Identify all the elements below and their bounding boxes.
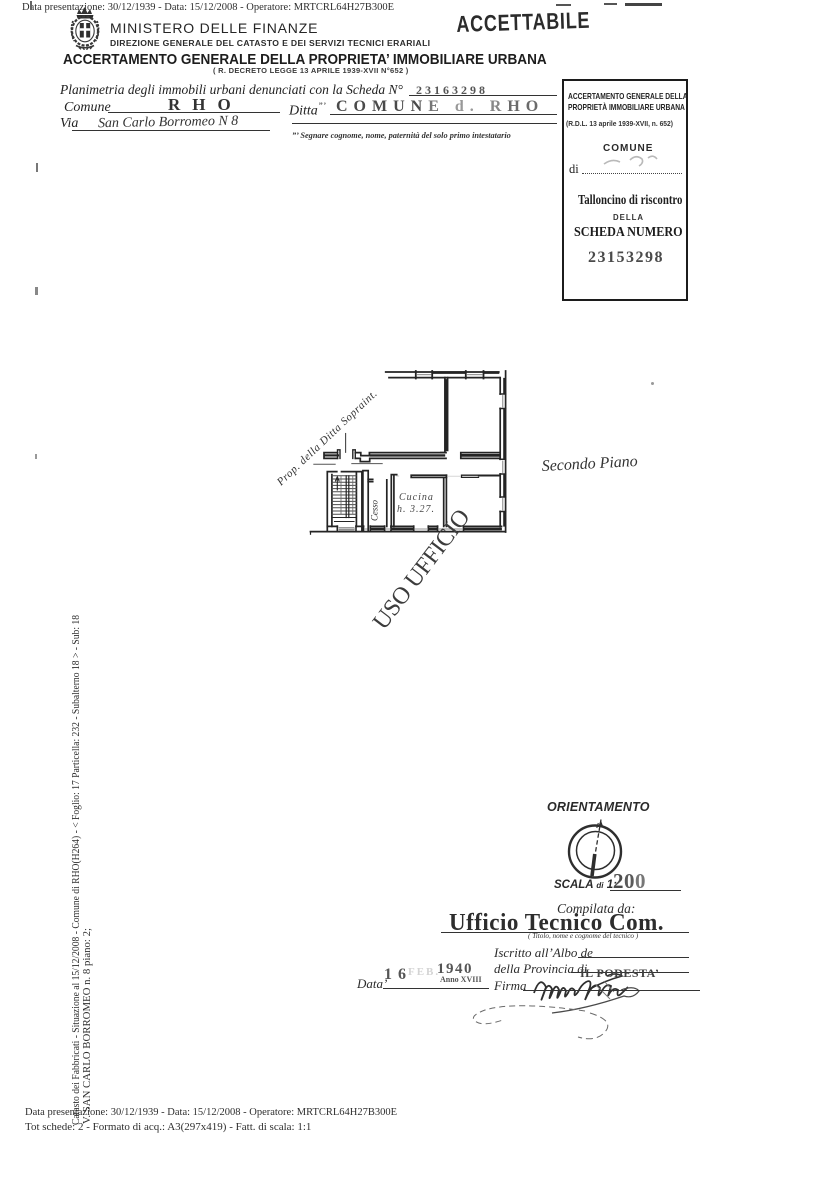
svg-text:Cesso: Cesso — [370, 500, 380, 522]
svg-text:V. SAN CARLO BORROMEO n. 8 pia: V. SAN CARLO BORROMEO n. 8 piano: 2; — [82, 928, 93, 1124]
svg-text:USO UFFICIO: USO UFFICIO — [368, 504, 476, 634]
svg-text:Catasto dei Fabbricati - Situa: Catasto dei Fabbricati - Situazione al 1… — [71, 615, 82, 1125]
svg-text:Secondo Piano: Secondo Piano — [541, 453, 638, 475]
